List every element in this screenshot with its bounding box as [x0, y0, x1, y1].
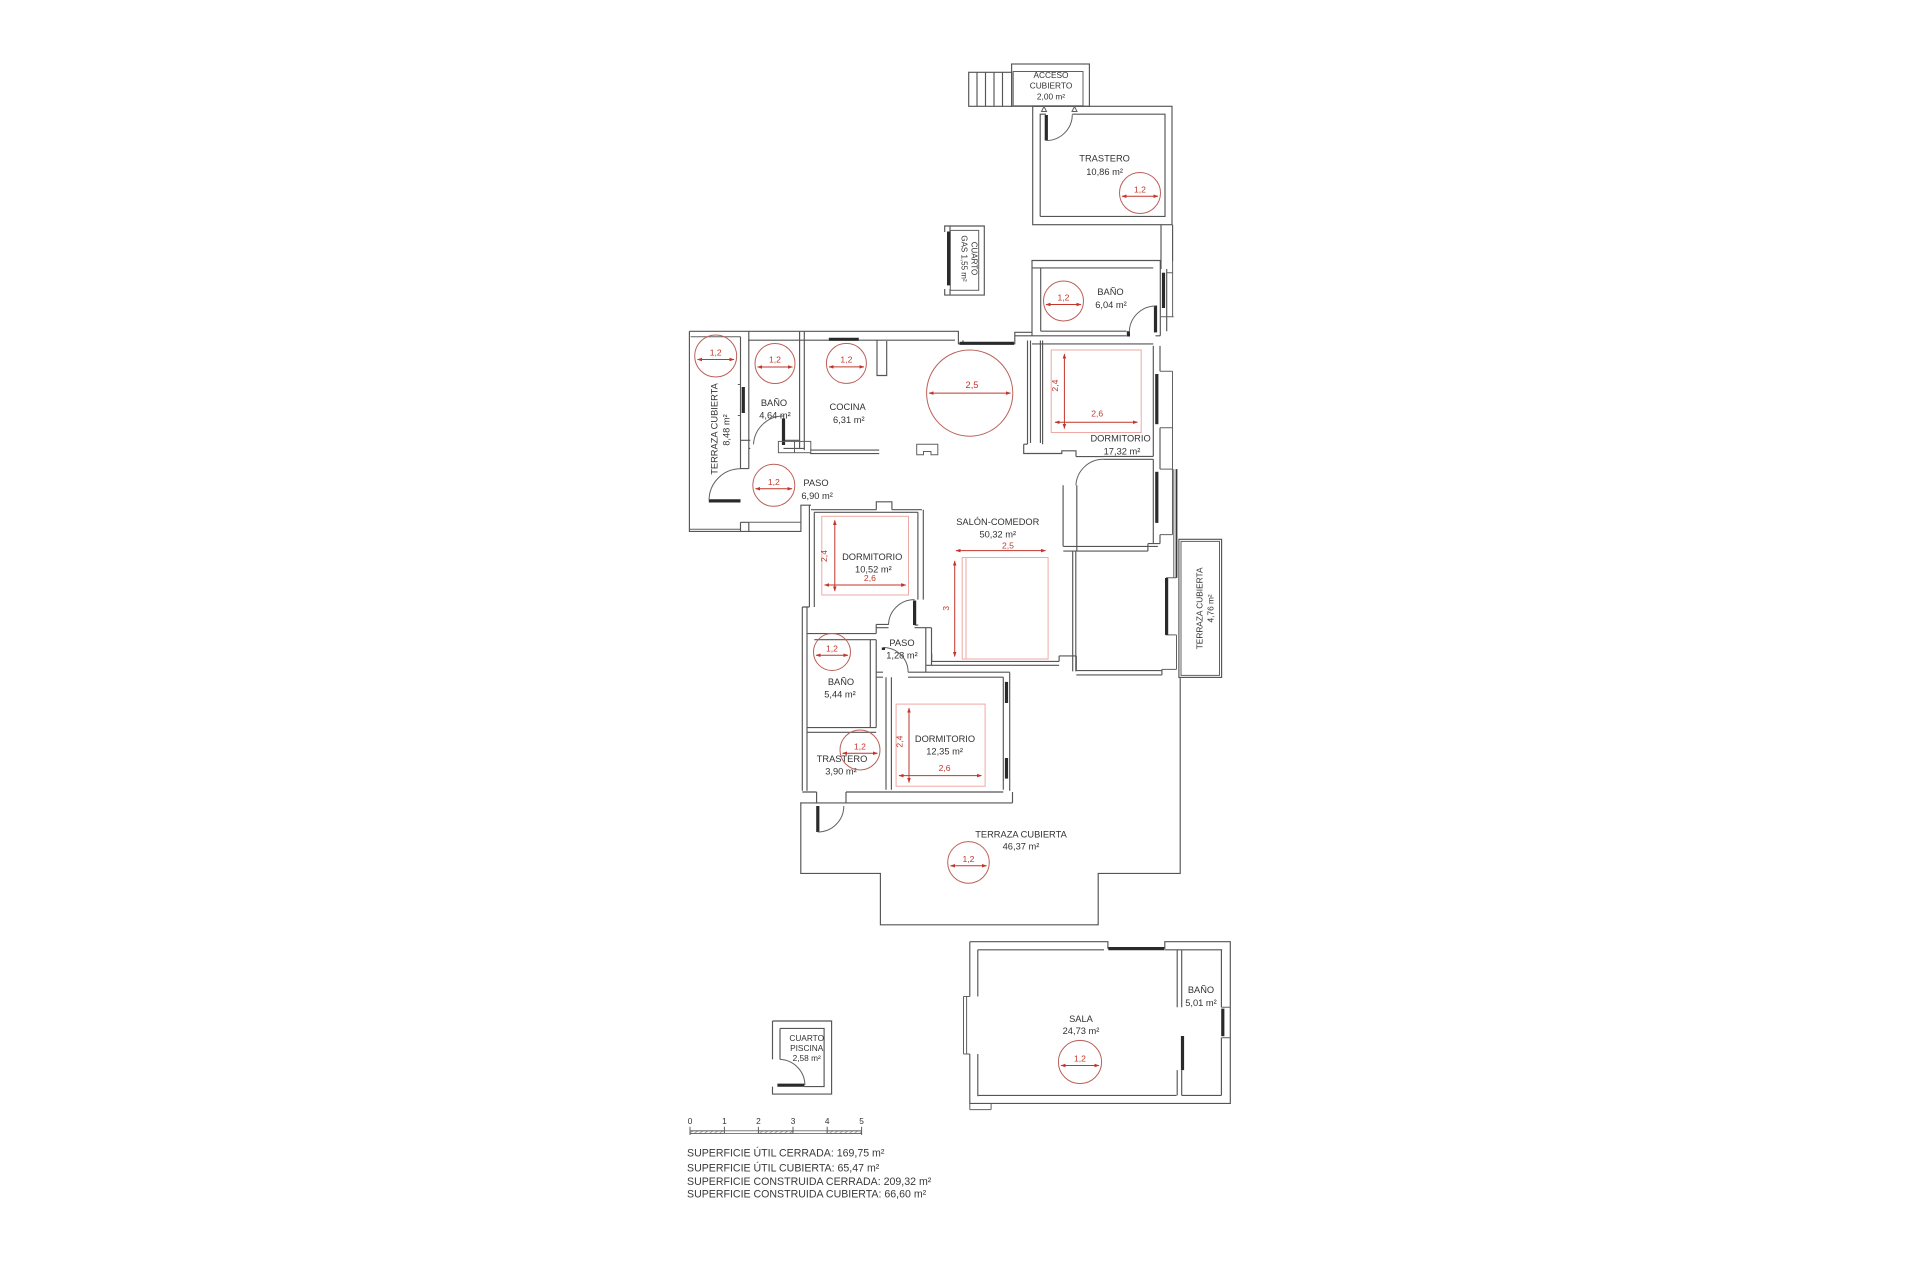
svg-text:2,5: 2,5 [1002, 541, 1014, 551]
svg-text:2,6: 2,6 [864, 573, 876, 583]
svg-text:3: 3 [941, 606, 951, 611]
svg-text:1,2: 1,2 [963, 854, 975, 864]
svg-text:DORMITORIO: DORMITORIO [1090, 434, 1150, 444]
svg-text:BAÑO: BAÑO [1188, 985, 1214, 995]
svg-text:50,32 m²: 50,32 m² [979, 530, 1016, 540]
svg-text:4: 4 [825, 1116, 830, 1126]
svg-text:1,2: 1,2 [854, 742, 866, 752]
svg-text:10,52 m²: 10,52 m² [855, 565, 892, 575]
svg-text:5,44 m²: 5,44 m² [824, 690, 856, 700]
svg-text:BAÑO: BAÑO [761, 398, 787, 408]
svg-text:ACCESO: ACCESO [1033, 70, 1069, 80]
svg-text:3: 3 [791, 1116, 796, 1126]
svg-text:2,00 m²: 2,00 m² [1037, 92, 1065, 102]
svg-text:1,2: 1,2 [826, 644, 838, 654]
svg-text:TERRAZA CUBIERTA: TERRAZA CUBIERTA [710, 382, 720, 474]
svg-text:8,48 m²: 8,48 m² [722, 414, 732, 446]
svg-text:1,2: 1,2 [1058, 293, 1070, 303]
svg-text:1,2: 1,2 [769, 355, 781, 365]
svg-text:2,4: 2,4 [1050, 379, 1060, 391]
svg-text:PASO: PASO [889, 638, 914, 648]
svg-text:DORMITORIO: DORMITORIO [842, 552, 902, 562]
svg-text:1,2: 1,2 [1134, 185, 1146, 195]
svg-text:2,58 m²: 2,58 m² [793, 1053, 821, 1063]
svg-text:SALÓN-COMEDOR: SALÓN-COMEDOR [956, 517, 1039, 527]
svg-text:SUPERFICIE CONSTRUIDA CUBIERTA: SUPERFICIE CONSTRUIDA CUBIERTA: 66,60 m² [687, 1189, 927, 1201]
svg-text:6,04 m²: 6,04 m² [1095, 300, 1127, 310]
svg-text:6,90 m²: 6,90 m² [801, 491, 833, 501]
svg-text:12,35 m²: 12,35 m² [926, 747, 963, 757]
svg-text:SUPERFICIE CONSTRUIDA CERRADA:: SUPERFICIE CONSTRUIDA CERRADA: 209,32 m² [687, 1176, 932, 1188]
svg-text:2,4: 2,4 [895, 735, 905, 747]
svg-text:PASO: PASO [803, 478, 828, 488]
svg-text:0: 0 [688, 1116, 693, 1126]
svg-text:1,2: 1,2 [1074, 1054, 1086, 1064]
svg-text:1: 1 [722, 1116, 727, 1126]
svg-text:TERRAZA CUBIERTA: TERRAZA CUBIERTA [1195, 567, 1205, 649]
svg-text:COCINA: COCINA [830, 402, 867, 412]
svg-text:4,76 m²: 4,76 m² [1206, 594, 1216, 622]
svg-text:2,4: 2,4 [819, 550, 829, 562]
svg-text:SUPERFICIE ÚTIL CUBIERTA: 65,4: SUPERFICIE ÚTIL CUBIERTA: 65,47 m² [687, 1162, 880, 1175]
svg-text:24,73 m²: 24,73 m² [1063, 1026, 1100, 1036]
svg-text:GAS 1,55 m²: GAS 1,55 m² [960, 235, 969, 282]
svg-text:1,2: 1,2 [840, 354, 852, 364]
svg-text:DORMITORIO: DORMITORIO [915, 734, 975, 744]
svg-text:4,64 m²: 4,64 m² [759, 411, 791, 421]
svg-text:BAÑO: BAÑO [828, 677, 854, 687]
svg-text:CUBIERTO: CUBIERTO [1030, 81, 1073, 91]
svg-text:1,2: 1,2 [768, 477, 780, 487]
svg-text:2,5: 2,5 [966, 380, 979, 390]
svg-text:2: 2 [756, 1116, 761, 1126]
svg-text:5: 5 [859, 1116, 864, 1126]
svg-text:17,32 m²: 17,32 m² [1104, 447, 1141, 457]
svg-text:TRASTERO: TRASTERO [1079, 154, 1130, 164]
svg-text:CUARTO: CUARTO [970, 242, 979, 276]
svg-text:10,86 m²: 10,86 m² [1086, 167, 1123, 177]
svg-text:2,6: 2,6 [1091, 409, 1103, 419]
svg-text:SALA: SALA [1069, 1014, 1094, 1024]
svg-text:1,2: 1,2 [710, 348, 722, 358]
svg-text:PISCINA: PISCINA [790, 1043, 824, 1053]
svg-text:BAÑO: BAÑO [1097, 287, 1123, 297]
svg-text:5,01 m²: 5,01 m² [1185, 998, 1217, 1008]
svg-text:46,37 m²: 46,37 m² [1003, 842, 1040, 852]
svg-text:6,31 m²: 6,31 m² [833, 415, 865, 425]
svg-text:CUARTO: CUARTO [789, 1033, 824, 1043]
svg-text:TERRAZA CUBIERTA: TERRAZA CUBIERTA [975, 830, 1067, 840]
svg-text:SUPERFICIE ÚTIL CERRADA: 169,7: SUPERFICIE ÚTIL CERRADA: 169,75 m² [687, 1147, 885, 1160]
svg-text:2,6: 2,6 [939, 763, 951, 773]
